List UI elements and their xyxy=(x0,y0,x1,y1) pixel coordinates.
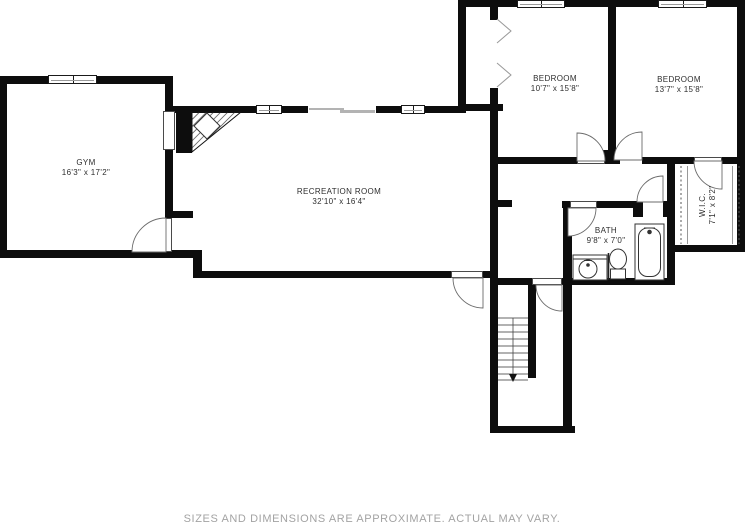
room-dims: 10'7" x 15'8" xyxy=(531,84,579,94)
room-label-bedroom2: BEDROOM 13'7" x 15'8" xyxy=(655,75,703,95)
room-dims: 16'3" x 17'2" xyxy=(62,168,110,178)
winder-stairs xyxy=(192,112,241,152)
bedroom2-door-arc xyxy=(614,132,642,160)
floor-plan: GYM 16'3" x 17'2" RECREATION ROOM 32'10"… xyxy=(0,0,752,523)
room-name: RECREATION ROOM xyxy=(297,187,381,197)
room-dims: 7'1" x 8'2" xyxy=(708,186,718,225)
stairs-door-arc xyxy=(536,285,562,311)
room-name: BEDROOM xyxy=(531,74,579,84)
room-dims: 32'10" x 16'4" xyxy=(297,197,381,207)
room-name: GYM xyxy=(62,158,110,168)
bathtub xyxy=(635,224,664,280)
room-dims: 9'8" x 7'0" xyxy=(587,236,626,246)
toilet xyxy=(610,249,627,279)
disclaimer-text: SIZES AND DIMENSIONS ARE APPROXIMATE. AC… xyxy=(184,513,561,525)
bifold-closet-doors xyxy=(497,19,511,87)
room-dims: 13'7" x 15'8" xyxy=(655,85,703,95)
room-label-wic: W.I.C. 7'1" x 8'2" xyxy=(698,186,718,225)
gym-door-arc xyxy=(132,218,166,252)
room-name: W.I.C. xyxy=(698,186,708,225)
stair-direction-arrow xyxy=(509,318,517,382)
room-label-bath: BATH 9'8" x 7'0" xyxy=(587,226,626,246)
room-name: BEDROOM xyxy=(655,75,703,85)
hall-door-arc xyxy=(637,176,663,202)
sink-vanity xyxy=(573,255,607,280)
room-label-gym: GYM 16'3" x 17'2" xyxy=(62,158,110,178)
room-label-bedroom1: BEDROOM 10'7" x 15'8" xyxy=(531,74,579,94)
room-label-recreation: RECREATION ROOM 32'10" x 16'4" xyxy=(297,187,381,207)
room-name: BATH xyxy=(587,226,626,236)
detail-overlay xyxy=(0,0,752,523)
door-arcs xyxy=(132,132,722,311)
rec-exterior-door-arc xyxy=(453,278,483,308)
bedroom1-door-arc xyxy=(577,133,605,161)
